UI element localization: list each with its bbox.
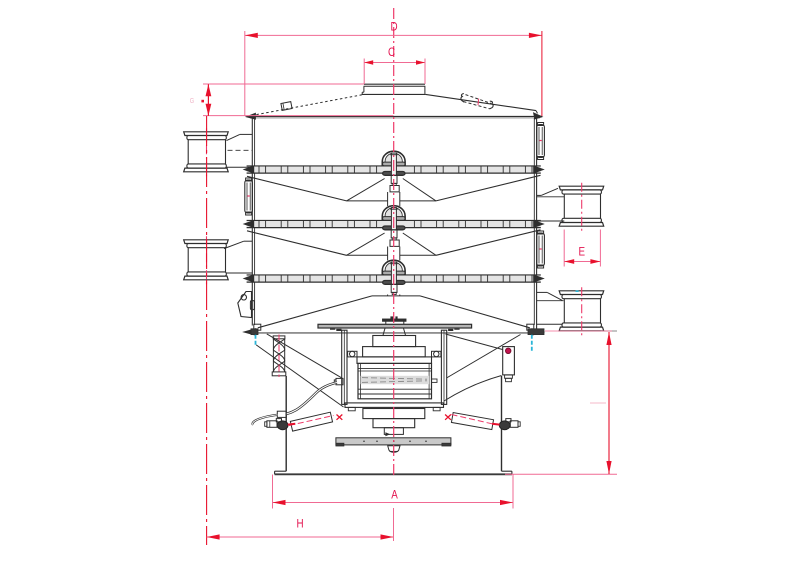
svg-text:D: D xyxy=(390,21,397,34)
svg-text:A: A xyxy=(391,489,398,502)
svg-text:E: E xyxy=(579,246,586,259)
svg-text:G: G xyxy=(190,98,194,106)
svg-text:C: C xyxy=(388,46,395,59)
svg-text:H: H xyxy=(296,518,303,531)
